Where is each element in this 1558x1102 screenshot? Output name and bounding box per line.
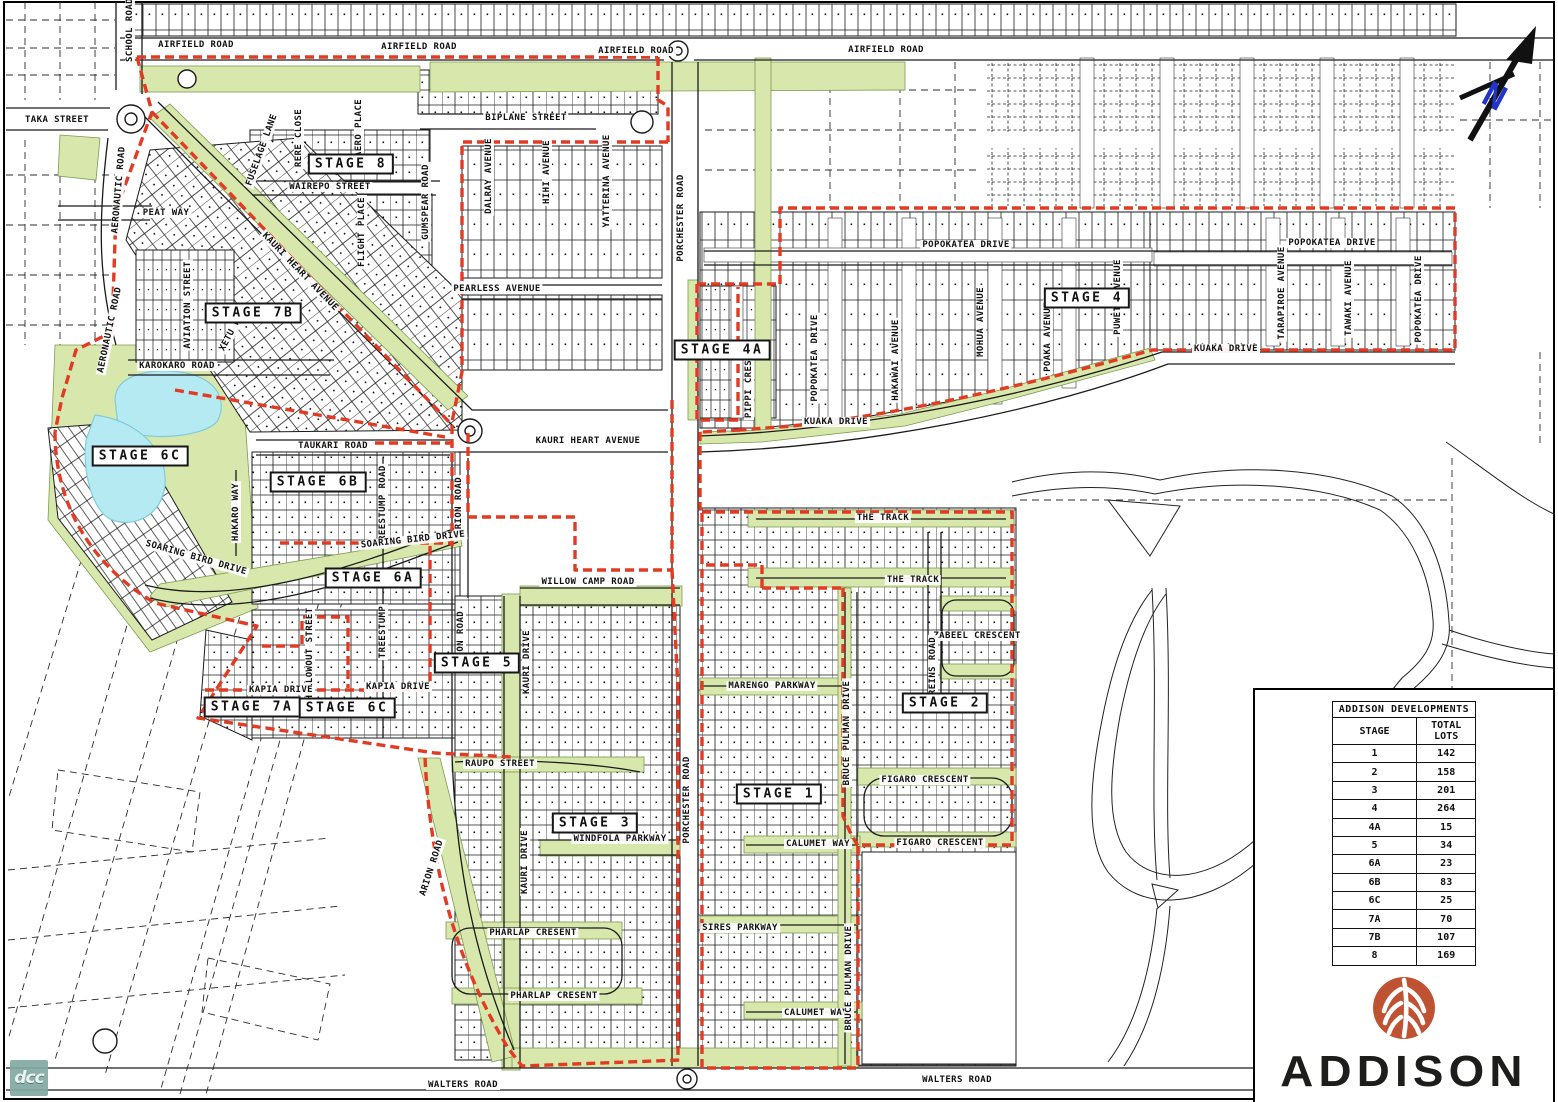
stage-label: STAGE 6A <box>325 568 422 589</box>
stage-lots-row: 1142 <box>1332 745 1475 763</box>
legend-table-body: 11422158320142644A155346A236B836C257A707… <box>1332 745 1475 966</box>
stage-label: STAGE 2 <box>902 693 988 714</box>
stage-lots-row: 7A70 <box>1332 910 1475 928</box>
street-label: PEAT WAY <box>141 208 192 218</box>
total-lots-cell: 34 <box>1417 836 1476 854</box>
street-label: THE TRACK <box>855 513 911 523</box>
street-label: PORCHESTER ROAD <box>682 754 692 845</box>
street-label: TREESTUMP <box>378 604 388 660</box>
street-label: FIGARO CRESCENT <box>894 838 985 848</box>
street-label: FIGARO CRESCENT <box>879 775 970 785</box>
street-label: BIPLANE STREET <box>483 113 568 123</box>
street-label: PEARLESS AVENUE <box>451 284 542 294</box>
total-lots-cell: 83 <box>1417 873 1476 891</box>
total-lots-cell: 70 <box>1417 910 1476 928</box>
north-arrow: N <box>1460 26 1536 140</box>
street-label: WINDFOLA PARKWAY <box>571 834 668 844</box>
stage-lots-row: 7B107 <box>1332 928 1475 946</box>
street-label: KAURI DRIVE <box>520 828 530 896</box>
stage-cell: 6C <box>1332 892 1416 910</box>
street-label: KAPIA DRIVE <box>247 685 315 695</box>
street-label: DALRAY AVENUE <box>484 136 494 216</box>
street-label: BRUCE PULMAN DRIVE <box>842 679 852 788</box>
stage-cell: 4A <box>1332 818 1416 836</box>
street-label: TAUKARI ROAD <box>296 441 370 451</box>
stage-label: STAGE 1 <box>736 784 822 805</box>
stage-cell: 3 <box>1332 781 1416 799</box>
street-label: POAKA AVENUE <box>1043 300 1053 374</box>
stage-label: STAGE 3 <box>552 813 638 834</box>
street-label: SIRES PARKWAY <box>700 923 780 933</box>
street-label: RAUPO STREET <box>463 759 537 769</box>
stage-lots-row: 3201 <box>1332 781 1475 799</box>
stage-lots-table: ADDISON DEVELOPMENTS STAGE TOTAL LOTS 11… <box>1332 701 1476 966</box>
stage-lots-row: 8169 <box>1332 947 1475 965</box>
street-label: POPOKATEA DRIVE <box>1286 238 1377 248</box>
street-label: ARION ROAD <box>454 475 464 537</box>
street-label: TAKA STREET <box>23 115 91 125</box>
total-lots-cell: 169 <box>1417 947 1476 965</box>
street-label: PHARLAP CRESENT <box>508 991 599 1001</box>
street-label: POPOKATEA DRIVE <box>1414 253 1424 344</box>
dcc-watermark-text: dcc <box>14 1068 43 1088</box>
stage-label: STAGE 6C <box>299 698 396 719</box>
legend-table-title: ADDISON DEVELOPMENTS <box>1332 702 1475 718</box>
stage-cell: 6A <box>1332 855 1416 873</box>
street-label: MARENGO PARKWAY <box>726 681 817 691</box>
total-lots-cell: 142 <box>1417 745 1476 763</box>
street-label: KAROKARO ROAD <box>137 361 217 371</box>
stage-cell: 7A <box>1332 910 1416 928</box>
street-label: RERE CLOSE <box>294 107 304 169</box>
stage-cell: 5 <box>1332 836 1416 854</box>
col-header-stage: STAGE <box>1332 718 1416 745</box>
street-label: GUMSPEAR ROAD <box>421 162 431 242</box>
street-label: PHARLAP CRESENT <box>487 928 578 938</box>
stage-cell: 7B <box>1332 928 1416 946</box>
addison-wordmark: ADDISON <box>1280 1047 1527 1097</box>
street-label: KUAKA DRIVE <box>1192 344 1260 354</box>
stage-cell: 8 <box>1332 947 1416 965</box>
stage-lots-row: 4264 <box>1332 800 1475 818</box>
total-lots-cell: 25 <box>1417 892 1476 910</box>
street-label: KAURI HEART AVENUE <box>534 436 643 446</box>
street-label: REINS ROAD <box>928 635 938 697</box>
street-label: TARAPIROE AVENUE <box>1277 244 1287 341</box>
street-label: ZABEEL CRESCENT <box>931 631 1022 641</box>
stage-label: STAGE 4A <box>674 340 771 361</box>
street-label: KAPIA DRIVE <box>364 682 432 692</box>
stage-lots-row: 534 <box>1332 836 1475 854</box>
col-header-total-lots: TOTAL LOTS <box>1417 718 1476 745</box>
total-lots-cell: 107 <box>1417 928 1476 946</box>
total-lots-cell: 201 <box>1417 781 1476 799</box>
street-label: KAURI DRIVE <box>522 628 532 696</box>
street-label: MOHUA AVENUE <box>976 285 986 359</box>
total-lots-cell: 158 <box>1417 763 1476 781</box>
total-lots-cell: 23 <box>1417 855 1476 873</box>
street-label: CALUMET WAY <box>784 839 852 849</box>
dcc-watermark-logo: dcc <box>10 1060 48 1096</box>
stage-cell: 6B <box>1332 873 1416 891</box>
stage-label: STAGE 8 <box>308 154 394 175</box>
street-label: AERO PLACE <box>354 97 364 159</box>
street-label: WILLOW CAMP ROAD <box>539 577 636 587</box>
street-label: AIRFIELD ROAD <box>156 40 236 50</box>
stage-label: STAGE 6C <box>92 446 189 467</box>
street-label: WAIREPO STREET <box>287 182 372 192</box>
legend-panel: ADDISON DEVELOPMENTS STAGE TOTAL LOTS 11… <box>1253 688 1555 1102</box>
street-label: POPOKATEA DRIVE <box>810 312 820 403</box>
north-label: N <box>1476 75 1513 120</box>
street-label: FLIGHT PLACE <box>357 195 367 269</box>
street-label: PIPPI CRES <box>744 358 754 420</box>
street-label: BRUCE PULMAN DRIVE <box>844 924 854 1033</box>
stage-label: STAGE 7B <box>205 303 302 324</box>
street-label: CALUMET WAY <box>782 1008 850 1018</box>
street-label: HAKARO WAY <box>231 481 241 543</box>
stage-lots-row: 6B83 <box>1332 873 1475 891</box>
stage-cell: 4 <box>1332 800 1416 818</box>
stage-label: STAGE 7A <box>204 697 301 718</box>
street-label: YATTERINA AVENUE <box>602 132 612 229</box>
street-label: PORCHESTER ROAD <box>676 172 686 263</box>
stage-lots-row: 6A23 <box>1332 855 1475 873</box>
stage-lots-row: 4A15 <box>1332 818 1475 836</box>
street-label: KUAKA DRIVE <box>802 417 870 427</box>
stage-label: STAGE 5 <box>434 653 520 674</box>
stage-cell: 1 <box>1332 745 1416 763</box>
street-label: SCHOOL ROAD <box>125 0 135 64</box>
street-label: WALTERS ROAD <box>426 1080 500 1090</box>
total-lots-cell: 264 <box>1417 800 1476 818</box>
stage-lots-row: 6C25 <box>1332 892 1475 910</box>
street-label: WALTERS ROAD <box>920 1075 994 1085</box>
stage-lots-row: 2158 <box>1332 763 1475 781</box>
addison-logo-icon <box>1371 975 1437 1045</box>
street-label: AIRFIELD ROAD <box>846 45 926 55</box>
site-plan-sheet: N SCHOOL ROADAIRFIELD ROADAIRFIELD ROADA… <box>0 0 1558 1102</box>
street-label: TAWAKI AVENUE <box>1344 258 1354 338</box>
street-label: HIHI AVENUE <box>542 138 552 206</box>
street-label: THE TRACK <box>885 575 941 585</box>
street-label: AVIATION STREET <box>183 259 193 350</box>
total-lots-cell: 15 <box>1417 818 1476 836</box>
street-label: AIRFIELD ROAD <box>596 46 676 56</box>
street-label: HAKAWAI AVENUE <box>891 317 901 402</box>
street-label: POPOKATEA DRIVE <box>920 240 1011 250</box>
street-label: TREESTUMP ROAD <box>378 463 388 548</box>
stage-cell: 2 <box>1332 763 1416 781</box>
street-label: AIRFIELD ROAD <box>379 42 459 52</box>
stage-label: STAGE 6B <box>270 472 367 493</box>
stage-label: STAGE 4 <box>1044 288 1130 309</box>
